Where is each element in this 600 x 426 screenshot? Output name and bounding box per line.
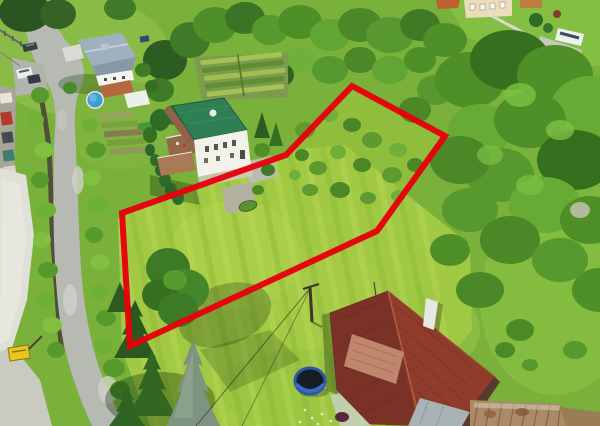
window (104, 78, 107, 81)
road-patch (63, 284, 77, 316)
vehicle (2, 149, 14, 161)
door (240, 150, 245, 159)
maroon-bush (335, 412, 349, 422)
orange-roof (436, 0, 460, 9)
canopy-highlight (163, 270, 187, 290)
bush (389, 143, 407, 157)
aerial-photo-canvas (0, 0, 600, 426)
dormer (101, 43, 110, 50)
bush (362, 132, 382, 148)
orange-roof-2 (520, 0, 542, 8)
bush (360, 192, 376, 204)
bush (343, 118, 361, 132)
tree-top-left (40, 0, 76, 29)
bush (252, 185, 264, 195)
bush (254, 143, 270, 157)
rust-patch (515, 408, 529, 416)
bush (404, 47, 436, 73)
bush (309, 161, 327, 175)
canopy-highlight (546, 120, 574, 140)
bush (430, 234, 470, 266)
ball-tree (543, 23, 553, 33)
window (216, 156, 220, 161)
pool-highlight (89, 94, 97, 102)
window (122, 76, 125, 79)
vehicle (1, 131, 13, 143)
tree (480, 216, 540, 264)
bush (372, 56, 408, 84)
terrace-furniture (183, 144, 186, 147)
bush (143, 127, 157, 143)
sign-board (8, 345, 30, 361)
window (500, 2, 505, 8)
bush (295, 149, 309, 161)
canopy-highlight (477, 145, 503, 165)
bush (456, 272, 504, 308)
vehicle-red (0, 111, 13, 125)
window (470, 4, 475, 10)
pole (310, 286, 312, 322)
bush (330, 182, 350, 198)
bush (302, 184, 318, 196)
window (232, 140, 236, 146)
bush (289, 170, 301, 180)
bush (353, 158, 371, 172)
window (113, 77, 116, 80)
window (204, 158, 208, 163)
rock (570, 202, 590, 218)
bush (382, 167, 402, 183)
aerial-photo (0, 0, 600, 426)
bush (563, 341, 587, 359)
bush (522, 359, 538, 371)
window (205, 146, 209, 152)
red-shrub (553, 10, 561, 18)
bush (135, 63, 151, 77)
bush (330, 145, 346, 159)
ball-tree (529, 13, 543, 27)
bush (495, 342, 515, 358)
window (480, 4, 485, 10)
window (490, 3, 495, 9)
road-patch (57, 109, 67, 131)
bush (344, 47, 376, 73)
road-patch (72, 166, 84, 194)
window (230, 153, 234, 158)
roof-vent (210, 110, 217, 117)
bush (312, 56, 348, 84)
bush (145, 80, 159, 92)
window (214, 144, 218, 150)
bush (63, 82, 77, 94)
vehicle (0, 92, 13, 104)
terrace-furniture (176, 142, 179, 145)
canopy-highlight (516, 175, 544, 195)
bush (506, 319, 534, 341)
rust-patch (484, 410, 496, 418)
canopy-highlight (504, 83, 536, 107)
window (223, 142, 227, 148)
